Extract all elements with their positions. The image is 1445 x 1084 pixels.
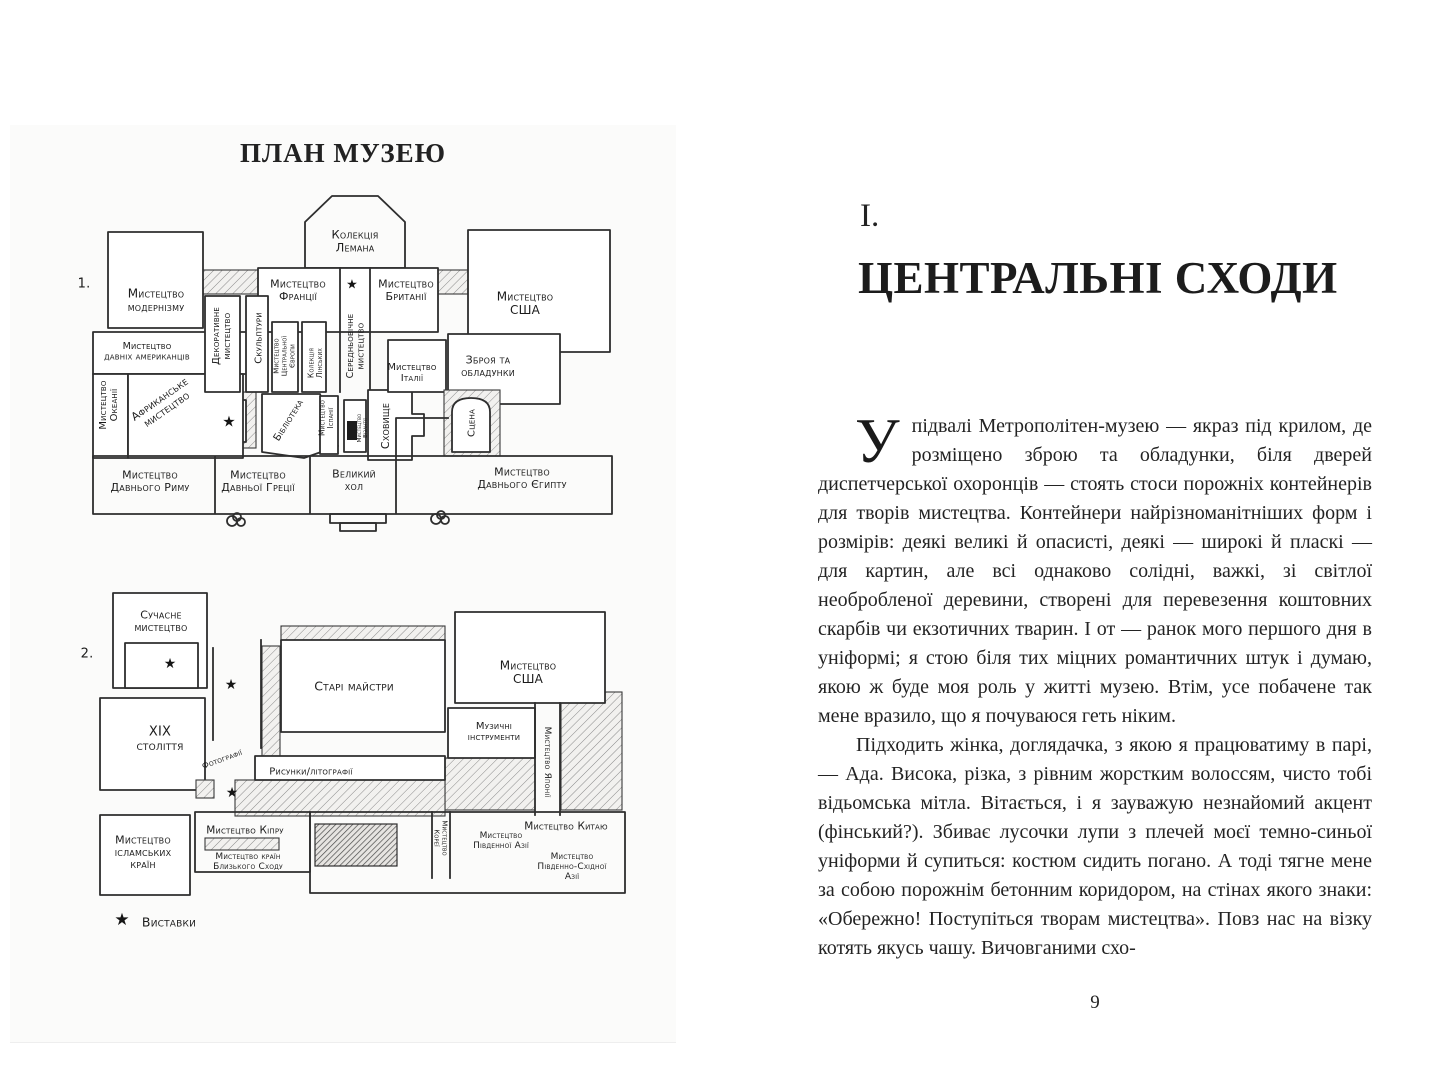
- map-label: Сховище: [379, 403, 392, 449]
- exhibition-star-icon: ★: [222, 412, 235, 430]
- paragraph-1: Упідвалі Метрополітен-музею — якраз під …: [818, 412, 1372, 731]
- chapter-number: I.: [860, 198, 879, 235]
- map-label: Декоративнемистецтво: [211, 307, 233, 365]
- map-label: МистецтвоДавньої Греції: [221, 469, 295, 494]
- exhibition-star-icon: ★: [346, 278, 358, 293]
- exhibition-star-icon: ★: [164, 656, 177, 672]
- map-label: Фотографії: [201, 748, 244, 771]
- book-page-right: I. ЦЕНТРАЛЬНІ СХОДИ Упідвалі Метрополіте…: [676, 0, 1445, 1084]
- map-label: Виставки: [142, 914, 196, 929]
- map-label: Мистецтво Японії: [542, 727, 552, 798]
- exhibition-star-icon: ★: [225, 677, 238, 693]
- map-label: МистецтвоПівденно-СхідноїАзії: [537, 852, 606, 882]
- map-label: Мистецтво країнБлизького Сходу: [213, 852, 283, 872]
- exhibition-star-icon: ★: [226, 785, 239, 801]
- map-label: 2.: [81, 647, 94, 662]
- map-label: Старі майстри: [314, 678, 394, 693]
- map-label: Мистецтво Китаю: [524, 821, 608, 833]
- chapter-title: ЦЕНТРАЛЬНІ СХОДИ: [858, 252, 1338, 304]
- map-label: Сучаснемистецтво: [134, 609, 187, 634]
- map-label: МистецтвоКореї: [433, 820, 449, 856]
- drop-cap: У: [818, 412, 912, 466]
- map-label: МистецтвоДавнього Риму: [110, 469, 189, 494]
- map-label: Скульптури: [254, 312, 265, 364]
- map-label: МистецтвоДавнього Єгипту: [477, 466, 566, 491]
- map-label: Середньовічнемистецтво: [345, 314, 367, 379]
- map-label: МистецтвоПівденної Азії: [473, 831, 529, 851]
- map-label: 1.: [78, 277, 91, 292]
- museum-floor-plans: 1.МистецтвомодернізмуКолекціяЛеманаМисте…: [10, 125, 676, 1042]
- map-label: Мистецтво Кіпру: [206, 825, 284, 837]
- map-label: Мистецтвомодернізму: [128, 287, 185, 314]
- chapter-body: Упідвалі Метрополітен-музею — якраз під …: [818, 412, 1372, 963]
- map-label: Великийхол: [332, 468, 376, 493]
- map-label: Рисунки/літографії: [269, 767, 353, 778]
- book-spread: { "page_left": { "title": "ПЛАН МУЗЕЮ", …: [0, 0, 1445, 1084]
- map-label: МистецтвоБританії: [378, 278, 434, 303]
- paragraph-2: Підходить жінка, доглядачка, з якою я пр…: [818, 731, 1372, 963]
- map-label: КолекціяЛінських: [306, 348, 323, 379]
- exhibition-star-icon: ★: [114, 910, 129, 930]
- map-label: Сцена: [467, 409, 478, 437]
- map-label: Зброя таобладунки: [461, 354, 515, 379]
- book-page-left: ПЛАН МУЗЕЮ: [10, 125, 676, 1043]
- map-label: КолекціяЛемана: [332, 228, 379, 255]
- page-number: 9: [818, 992, 1372, 1014]
